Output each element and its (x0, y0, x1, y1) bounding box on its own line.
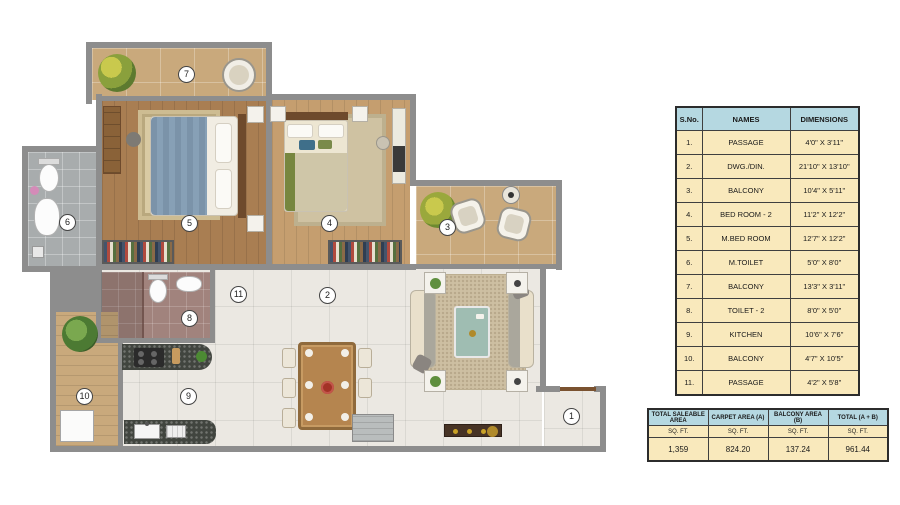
floor-plan-page: 1 2 3 4 5 6 7 8 9 10 11 S.No. NAMES DIME… (0, 0, 900, 505)
table-row: 9.KITCHEN10'6" X 7'6" (676, 323, 859, 347)
shower-divider (142, 272, 144, 338)
name-cell: TOILET - 2 (702, 299, 790, 323)
room-marker-5: 5 (181, 215, 198, 232)
dim-cell: 21'10" X 13'10" (790, 155, 859, 179)
wall-block (50, 270, 102, 308)
sno-cell: 11. (676, 371, 702, 396)
name-cell: PASSAGE (702, 131, 790, 155)
wall (96, 264, 416, 270)
rooms-dimensions-table: S.No. NAMES DIMENSIONS 1.PASSAGE4'0" X 3… (675, 106, 860, 396)
side-table (424, 272, 446, 294)
nightstand (352, 106, 368, 122)
bed (284, 120, 348, 212)
plate (341, 381, 349, 389)
cutting-board (172, 348, 180, 364)
room-marker-3: 3 (439, 219, 456, 236)
open-wardrobe (102, 240, 174, 264)
bath-item (32, 246, 44, 258)
side-table (424, 370, 446, 392)
plant (62, 316, 98, 352)
chair-cushion (503, 213, 525, 235)
col-header-dimensions: DIMENSIONS (790, 107, 859, 131)
sno-cell: 9. (676, 323, 702, 347)
name-cell: BALCONY (702, 275, 790, 299)
area-col-header: TOTAL SALEABLE AREA (648, 409, 708, 426)
unit-cell: SQ. FT. (828, 426, 888, 438)
name-cell: M.TOILET (702, 251, 790, 275)
value-cell: 1,359 (648, 438, 708, 462)
nightstand (247, 106, 264, 123)
room-marker-6: 6 (59, 214, 76, 231)
wall (86, 42, 272, 48)
wall (96, 338, 215, 343)
name-cell: M.BED ROOM (702, 227, 790, 251)
wall (600, 390, 606, 452)
col-header-names: NAMES (702, 107, 790, 131)
sno-cell: 5. (676, 227, 702, 251)
dining-chair (282, 348, 296, 368)
bed (150, 116, 238, 216)
plate (341, 413, 349, 421)
plate (305, 413, 313, 421)
wall (540, 264, 546, 390)
crockery-cabinet (352, 414, 394, 442)
centerpiece (321, 381, 334, 394)
bed-blanket (151, 117, 207, 215)
wall (410, 180, 562, 186)
dining-chair (358, 348, 372, 368)
area-summary-table: TOTAL SALEABLE AREA CARPET AREA (A) BALC… (647, 408, 889, 462)
room-marker-8: 8 (181, 310, 198, 327)
sno-cell: 8. (676, 299, 702, 323)
side-table (506, 272, 528, 294)
plate (305, 349, 313, 357)
wall (22, 146, 102, 152)
toilet (149, 279, 167, 303)
plant (98, 54, 136, 92)
name-cell: BED ROOM - 2 (702, 203, 790, 227)
unit-cell: SQ. FT. (708, 426, 768, 438)
bed-headboard (238, 114, 246, 218)
plant (430, 376, 441, 387)
unit-cell: SQ. FT. (768, 426, 828, 438)
room-marker-10: 10 (76, 388, 93, 405)
table-row: 8.TOILET - 28'0" X 5'0" (676, 299, 859, 323)
table-row: 10.BALCONY4'7" X 10'5" (676, 347, 859, 371)
room-marker-11: 11 (230, 286, 247, 303)
wall (410, 94, 416, 186)
chair-cushion (457, 205, 480, 228)
wall (50, 306, 56, 452)
side-table (502, 186, 520, 204)
table-decor (508, 192, 514, 198)
dim-cell: 10'6" X 7'6" (790, 323, 859, 347)
nightstand (247, 215, 264, 232)
table-row: 5.M.BED ROOM12'7" X 12'2" (676, 227, 859, 251)
burner (138, 351, 144, 357)
value-cell: 824.20 (708, 438, 768, 462)
pillow (318, 124, 344, 138)
table-decor (476, 314, 484, 319)
room-marker-2: 2 (319, 287, 336, 304)
plate (341, 349, 349, 357)
area-col-header: TOTAL (A + B) (828, 409, 888, 426)
plant (196, 351, 207, 362)
wall (266, 42, 272, 102)
toilet (39, 164, 59, 192)
nightstand (270, 106, 286, 122)
table-decor (514, 378, 521, 385)
table-row: 1.PASSAGE4'0" X 3'11" (676, 131, 859, 155)
flower-decor (30, 186, 39, 195)
dim-cell: 11'2" X 12'2" (790, 203, 859, 227)
wall (22, 146, 28, 272)
coffee-table (454, 306, 490, 358)
name-cell: BALCONY (702, 347, 790, 371)
name-cell: PASSAGE (702, 371, 790, 396)
kitchen-sink (134, 424, 160, 439)
table-row: 4.BED ROOM - 211'2" X 12'2" (676, 203, 859, 227)
sno-cell: 6. (676, 251, 702, 275)
table-row: 3.BALCONY10'4" X 5'11" (676, 179, 859, 203)
tv-unit (393, 146, 405, 172)
dining-table (298, 342, 356, 430)
area-unit-row: SQ. FT. SQ. FT. SQ. FT. SQ. FT. (648, 426, 888, 438)
area-value-row: 1,359 824.20 137.24 961.44 (648, 438, 888, 462)
wall (96, 96, 272, 101)
table-row: 2.DWG./DIN.21'10" X 13'10" (676, 155, 859, 179)
table-header-row: S.No. NAMES DIMENSIONS (676, 107, 859, 131)
dim-cell: 10'4" X 5'11" (790, 179, 859, 203)
table-decor (469, 330, 476, 337)
entrance-door-lintel (560, 387, 596, 391)
table-decor (514, 280, 521, 287)
console-table (444, 424, 502, 437)
dim-cell: 4'2" X 5'8" (790, 371, 859, 396)
wall (50, 446, 606, 452)
dim-cell: 5'0" X 8'0" (790, 251, 859, 275)
side-table (506, 370, 528, 392)
wall (266, 94, 416, 100)
sno-cell: 1. (676, 131, 702, 155)
sno-cell: 3. (676, 179, 702, 203)
dining-chair (282, 378, 296, 398)
table-row: 7.BALCONY13'3" X 3'11" (676, 275, 859, 299)
name-cell: DWG./DIN. (702, 155, 790, 179)
wall (556, 180, 562, 270)
dim-cell: 13'3" X 3'11" (790, 275, 859, 299)
area-header-row: TOTAL SALEABLE AREA CARPET AREA (A) BALC… (648, 409, 888, 426)
cooktop (134, 348, 164, 367)
col-header-sno: S.No. (676, 107, 702, 131)
pillow (215, 169, 232, 209)
room-marker-7: 7 (178, 66, 195, 83)
bed-headboard (284, 112, 348, 120)
shower-area (101, 272, 142, 338)
wall (536, 386, 560, 392)
name-cell: KITCHEN (702, 323, 790, 347)
pillow (215, 123, 232, 163)
name-cell: BALCONY (702, 179, 790, 203)
wash-basin (34, 198, 60, 236)
dining-chair (358, 378, 372, 398)
room-marker-9: 9 (180, 388, 197, 405)
unit-cell: SQ. FT. (648, 426, 708, 438)
table-row: 6.M.TOILET5'0" X 8'0" (676, 251, 859, 275)
sno-cell: 4. (676, 203, 702, 227)
faucet (145, 422, 149, 426)
sno-cell: 10. (676, 347, 702, 371)
sofa (508, 290, 534, 368)
chair-cushion (229, 65, 249, 85)
area-col-header: BALCONY AREA (B) (768, 409, 828, 426)
round-chair (222, 58, 256, 92)
dish-rack (166, 425, 186, 438)
table-row: 11.PASSAGE4'2" X 5'8" (676, 371, 859, 396)
wall (50, 306, 102, 312)
wall (210, 268, 215, 342)
dim-cell: 4'7" X 10'5" (790, 347, 859, 371)
sno-cell: 7. (676, 275, 702, 299)
console-decor (487, 426, 498, 437)
plate (305, 381, 313, 389)
cushion (318, 140, 332, 149)
dim-cell: 4'0" X 3'11" (790, 131, 859, 155)
wardrobe-cabinet (103, 106, 121, 174)
stool (376, 136, 390, 150)
console-decor (453, 429, 458, 434)
bed-blanket (285, 153, 347, 211)
open-wardrobe (328, 240, 402, 264)
value-cell: 961.44 (828, 438, 888, 462)
value-cell: 137.24 (768, 438, 828, 462)
plant (430, 278, 441, 289)
pillow (287, 124, 313, 138)
dim-cell: 12'7" X 12'2" (790, 227, 859, 251)
washing-machine (60, 410, 94, 442)
wash-basin (176, 276, 202, 292)
sno-cell: 2. (676, 155, 702, 179)
wall (86, 42, 92, 104)
stool (126, 132, 141, 147)
area-col-header: CARPET AREA (A) (708, 409, 768, 426)
dining-chair (282, 408, 296, 428)
cushion (299, 140, 315, 150)
room-marker-4: 4 (321, 215, 338, 232)
dim-cell: 8'0" X 5'0" (790, 299, 859, 323)
room-marker-1: 1 (563, 408, 580, 425)
